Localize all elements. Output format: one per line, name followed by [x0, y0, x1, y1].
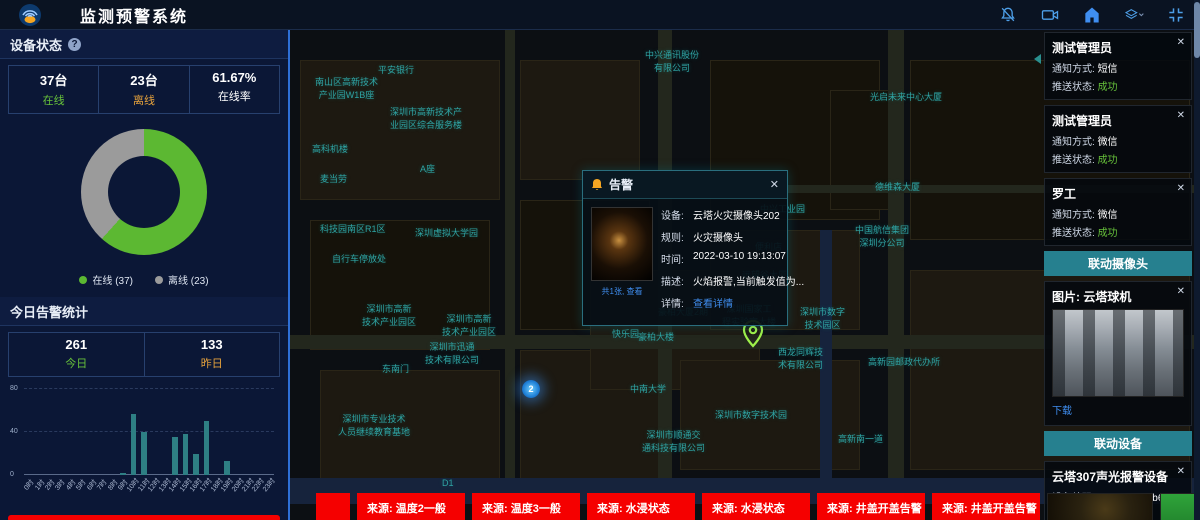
- notification-list: ✕测试管理员通知方式: 短信推送状态: 成功✕测试管理员通知方式: 微信推送状态…: [1044, 32, 1192, 246]
- map-label: 深圳虚拟大学园: [415, 226, 478, 239]
- x-tick: 6时: [87, 477, 97, 501]
- bar-col: [107, 389, 117, 475]
- ticker-text: 来源: 水浸状态: [712, 503, 785, 515]
- bar-col: [170, 389, 180, 475]
- stat-cell: 37台在线: [9, 66, 99, 113]
- download-link[interactable]: 下载: [1052, 402, 1072, 417]
- x-tick: 8时: [107, 477, 117, 501]
- bar: [141, 432, 147, 475]
- stat-cell: 261今日: [9, 333, 145, 376]
- map-label: D1: [442, 478, 454, 488]
- device-status-donut-wrap: [0, 118, 288, 266]
- card-name: 测试管理员: [1052, 39, 1184, 56]
- popup-field: 描述:火焰报警,当前触发值为...: [661, 273, 804, 288]
- bar-col: [253, 389, 263, 475]
- map-label: 高新园邮政代办所: [868, 355, 940, 368]
- video-camera-icon[interactable]: [1040, 5, 1060, 25]
- today-alarms-stats: 261今日133昨日: [8, 332, 280, 377]
- linked-devices-header: 联动设备: [1044, 431, 1192, 456]
- stat-label: 在线: [9, 92, 98, 108]
- legend-item: 离线 (23): [155, 272, 209, 287]
- bar-x-axis: 0时1时2时3时4时5时6时7时8时9时10时11时12时13时14时15时16…: [24, 477, 274, 501]
- notification-card: ✕测试管理员通知方式: 微信推送状态: 成功: [1044, 105, 1192, 173]
- left-stats-panel: 设备状态 ? 37台在线23台离线61.67%在线率 在线 (37)离线 (23…: [0, 30, 290, 520]
- ticker-text: 来源: 水浸状态: [597, 503, 670, 515]
- device-cluster-marker[interactable]: 2: [522, 380, 540, 398]
- thumbnail-caption-link[interactable]: 共1张, 查看: [591, 286, 653, 297]
- bar-col: [201, 389, 211, 475]
- device-status-stats: 37台在线23台离线61.67%在线率: [8, 65, 280, 114]
- home-icon[interactable]: [1082, 5, 1102, 25]
- field-value: 火焰报警,当前触发值为...: [693, 273, 804, 288]
- alarm-progress-bar: [8, 515, 280, 520]
- map-label: 光启未来中心大厦: [870, 90, 942, 103]
- card-field: 通知方式: 微信: [1052, 133, 1184, 148]
- alarm-ticker-card[interactable]: 来源: 井盖开盖告警: [932, 493, 1040, 520]
- fire-snapshot-image[interactable]: [591, 207, 653, 281]
- legend-dot-icon: [79, 276, 87, 284]
- legend-label: 离线 (23): [168, 272, 209, 287]
- layers-icon[interactable]: [1124, 5, 1144, 25]
- field-value: 云塔火灾摄像头202: [693, 207, 780, 222]
- bar-plot-area: 04080: [24, 389, 274, 475]
- camera-card-title: 图片: 云塔球机: [1052, 288, 1184, 305]
- x-tick: 2时: [45, 477, 55, 501]
- bar-col: [180, 389, 190, 475]
- field-label: 通知方式:: [1052, 64, 1098, 75]
- close-icon[interactable]: ✕: [1177, 110, 1185, 121]
- field-label: 规则:: [661, 229, 693, 244]
- stat-value: 261: [9, 337, 144, 352]
- close-icon[interactable]: ✕: [1177, 286, 1185, 297]
- right-sidebar: ✕测试管理员通知方式: 短信推送状态: 成功✕测试管理员通知方式: 微信推送状态…: [1044, 32, 1192, 520]
- legend-label: 在线 (37): [92, 272, 133, 287]
- help-icon[interactable]: ?: [68, 38, 81, 51]
- fullscreen-exit-icon[interactable]: [1166, 5, 1186, 25]
- ticker-text: 来源: 温度2一般: [367, 503, 446, 515]
- stat-value: 61.67%: [190, 70, 279, 85]
- today-alarms-header: 今日告警统计: [0, 297, 288, 326]
- ticker-text: 来源: 温度3一般: [482, 503, 561, 515]
- card-field: 通知方式: 短信: [1052, 60, 1184, 75]
- sidebar-collapse-icon[interactable]: [1034, 54, 1041, 64]
- alarm-ticker-card[interactable]: 来源: 水浸状态: [702, 493, 810, 520]
- card-name: 云塔307声光报警设备: [1052, 468, 1184, 485]
- bar-col: [97, 389, 107, 475]
- unprocessed-progress: [8, 515, 280, 520]
- hourly-alarm-bar-chart: 04080 0时1时2时3时4时5时6时7时8时9时10时11时12时13时14…: [8, 383, 278, 501]
- close-icon[interactable]: ✕: [1177, 466, 1185, 477]
- field-value: 微信: [1098, 137, 1118, 148]
- map-label: 中国航信集团 深圳分公司: [855, 223, 909, 249]
- page-title: 监测预警系统: [80, 3, 188, 27]
- map-label: 西龙同辉技 术有限公司: [778, 345, 823, 371]
- bar: [204, 421, 210, 475]
- field-value: 微信: [1098, 210, 1118, 221]
- alarm-popup-body: 共1张, 查看 设备:云塔火灾摄像头202规则:火灾摄像头时间:2022-03-…: [583, 199, 787, 325]
- device-status-title: 设备状态: [10, 35, 62, 54]
- stat-value: 23台: [99, 70, 188, 89]
- field-label: 推送状态:: [1052, 82, 1098, 93]
- map-label: 深圳市高新 技术产业园区: [442, 312, 496, 338]
- bar: [172, 437, 178, 475]
- field-value: 2022-03-10 19:13:07: [693, 251, 786, 266]
- map-label: 深圳市高新 技术产业园区: [362, 302, 416, 328]
- field-value: 短信: [1098, 64, 1118, 75]
- bar: [193, 454, 199, 476]
- close-icon[interactable]: ✕: [770, 178, 779, 191]
- popup-field: 详情:查看详情: [661, 295, 804, 310]
- popup-field: 设备:云塔火灾摄像头202: [661, 207, 804, 222]
- alarm-popup: 告警 ✕ 共1张, 查看 设备:云塔火灾摄像头202规则:火灾摄像头时间:202…: [582, 170, 788, 326]
- map-label: 南山区高新技术 产业园W1B座: [315, 75, 378, 101]
- bar-col: [34, 389, 44, 475]
- field-label: 通知方式:: [1052, 210, 1098, 221]
- card-field: 推送状态: 成功: [1052, 78, 1184, 93]
- map-label: 高科机楼: [312, 142, 348, 155]
- bar-col: [76, 389, 86, 475]
- camera-card: ✕ 图片: 云塔球机 下载: [1044, 281, 1192, 426]
- linked-camera-header: 联动摄像头: [1044, 251, 1192, 276]
- ticker-text: 来源: 井盖开盖告警: [942, 503, 1037, 515]
- x-tick: 0时: [24, 477, 34, 501]
- bar: [224, 461, 230, 475]
- field-label: 设备:: [661, 207, 693, 222]
- fire-thumbnail[interactable]: [1047, 493, 1153, 520]
- alarm-popup-title: 告警: [609, 176, 633, 193]
- view-detail-link[interactable]: 查看详情: [693, 295, 733, 310]
- stat-label: 离线: [99, 92, 188, 108]
- alarm-ticker: 来源: 温度2一般来源: 温度3一般来源: 水浸状态来源: 水浸状态来源: 井盖…: [316, 493, 1196, 520]
- x-tick: 1时: [34, 477, 44, 501]
- x-tick: 4时: [66, 477, 76, 501]
- map-label: 中南大学: [630, 382, 666, 395]
- page-scrollbar[interactable]: [1194, 0, 1200, 520]
- map-label: 自行车停放处: [332, 252, 386, 265]
- legend-item: 在线 (37): [79, 272, 133, 287]
- bar-col: [128, 389, 138, 475]
- today-alarms-title: 今日告警统计: [10, 302, 88, 321]
- bar-col: [264, 389, 274, 475]
- city-map[interactable]: 中兴通讯股份 有限公司平安银行南山区高新技术 产业园W1B座深圳市高新技术产 业…: [290, 30, 1200, 520]
- bar-col: [232, 389, 242, 475]
- alarm-ticker-card[interactable]: 来源: 水浸状态: [587, 493, 695, 520]
- bell-muted-icon[interactable]: [998, 5, 1018, 25]
- bar: [120, 473, 126, 475]
- alarm-popup-header: 告警 ✕: [583, 171, 787, 199]
- field-value: 成功: [1098, 155, 1118, 166]
- header-icon-group: [998, 5, 1186, 25]
- alarm-thumbnail-block: 共1张, 查看: [591, 207, 653, 317]
- popup-field: 规则:火灾摄像头: [661, 229, 804, 244]
- x-tick: 7时: [97, 477, 107, 501]
- map-label: 高新南一道: [838, 432, 883, 445]
- stat-label: 在线率: [190, 88, 279, 104]
- stat-cell: 61.67%在线率: [190, 66, 279, 113]
- field-label: 描述:: [661, 273, 693, 288]
- alarm-popup-fields: 设备:云塔火灾摄像头202规则:火灾摄像头时间:2022-03-10 19:13…: [661, 207, 804, 317]
- stat-value: 37台: [9, 70, 98, 89]
- field-value: 成功: [1098, 228, 1118, 239]
- bar-col: [45, 389, 55, 475]
- bars: [24, 389, 274, 475]
- bar: [183, 434, 189, 475]
- field-label: 推送状态:: [1052, 155, 1098, 166]
- bar-col: [118, 389, 128, 475]
- field-value: 成功: [1098, 82, 1118, 93]
- alarm-ticker-card[interactable]: [316, 493, 350, 520]
- bar-col: [87, 389, 97, 475]
- map-label: 深圳市顺通交 通科技有限公司: [642, 428, 705, 454]
- field-value: 火灾摄像头: [693, 229, 743, 244]
- card-name: 测试管理员: [1052, 112, 1184, 129]
- field-label: 时间:: [661, 251, 693, 266]
- stat-cell: 133昨日: [145, 333, 280, 376]
- field-label: 详情:: [661, 295, 693, 310]
- x-tick: 3时: [55, 477, 65, 501]
- bar-col: [191, 389, 201, 475]
- bar-col: [159, 389, 169, 475]
- card-field: 推送状态: 成功: [1052, 151, 1184, 166]
- notification-card: ✕测试管理员通知方式: 短信推送状态: 成功: [1044, 32, 1192, 100]
- donut-legend: 在线 (37)离线 (23): [0, 272, 288, 287]
- device-status-header: 设备状态 ?: [0, 30, 288, 59]
- bar-col: [222, 389, 232, 475]
- map-label: A座: [420, 162, 435, 175]
- map-label: 中兴通讯股份 有限公司: [645, 48, 699, 74]
- alarm-ticker-card[interactable]: 来源: 温度3一般: [472, 493, 580, 520]
- map-label: 深圳市数字 技术园区: [800, 305, 845, 331]
- stat-label: 昨日: [145, 355, 280, 371]
- bar-col: [149, 389, 159, 475]
- map-label: 深圳市高新技术产 业园区综合服务楼: [390, 105, 462, 131]
- bar-col: [55, 389, 65, 475]
- map-label: 豪柏大楼: [638, 330, 674, 343]
- scrollbar-thumb[interactable]: [1194, 2, 1200, 58]
- stat-cell: 23台离线: [99, 66, 189, 113]
- camera-snapshot-image[interactable]: [1052, 309, 1184, 397]
- map-label: 东南门: [382, 362, 409, 375]
- bar-col: [212, 389, 222, 475]
- monitoring-dashboard: 监测预警系统 设备状态 ? 37台在线23台离线61.67%在线率: [0, 0, 1200, 520]
- field-label: 通知方式:: [1052, 137, 1098, 148]
- notification-card: ✕罗工通知方式: 微信推送状态: 成功: [1044, 178, 1192, 246]
- close-icon[interactable]: ✕: [1177, 183, 1185, 194]
- map-label: 深圳市专业技术 人员继续教育基地: [338, 412, 410, 438]
- bar: [131, 414, 137, 475]
- map-label: 深圳市迅通 技术有限公司: [425, 340, 479, 366]
- x-tick: 23时: [264, 477, 274, 501]
- map-label: 快乐园: [612, 327, 639, 340]
- popup-field: 时间:2022-03-10 19:13:07: [661, 251, 804, 266]
- map-label: 平安银行: [378, 63, 414, 76]
- app-logo-icon: [18, 3, 42, 27]
- alarm-ticker-card[interactable]: 来源: 温度2一般: [357, 493, 465, 520]
- card-field: 通知方式: 微信: [1052, 206, 1184, 221]
- alarm-ticker-card[interactable]: 来源: 井盖开盖告警: [817, 493, 925, 520]
- card-field: 推送状态: 成功: [1052, 224, 1184, 239]
- green-thumbnail[interactable]: [1160, 493, 1196, 520]
- y-tick-label: 80: [10, 385, 18, 392]
- close-icon[interactable]: ✕: [1177, 37, 1185, 48]
- stat-value: 133: [145, 337, 280, 352]
- ticker-text: 来源: 井盖开盖告警: [827, 503, 922, 515]
- bar-col: [139, 389, 149, 475]
- field-label: 推送状态:: [1052, 228, 1098, 239]
- x-tick-label: 23时: [260, 476, 277, 494]
- map-label: 麦当劳: [320, 172, 347, 185]
- y-tick-label: 40: [10, 428, 18, 435]
- bar-col: [243, 389, 253, 475]
- map-label: 德维森大厦: [875, 180, 920, 193]
- y-tick-label: 0: [10, 471, 14, 478]
- stat-label: 今日: [9, 355, 144, 371]
- online-offline-donut-chart: [81, 129, 207, 255]
- alarm-bell-icon: [591, 178, 603, 192]
- map-label: 科技园南区R1区: [320, 222, 386, 235]
- bar-col: [24, 389, 34, 475]
- legend-dot-icon: [155, 276, 163, 284]
- x-tick: 5时: [76, 477, 86, 501]
- bar-col: [66, 389, 76, 475]
- map-label: 深圳市数字技术园: [715, 408, 787, 421]
- card-name: 罗工: [1052, 185, 1184, 202]
- top-header: 监测预警系统: [0, 0, 1200, 30]
